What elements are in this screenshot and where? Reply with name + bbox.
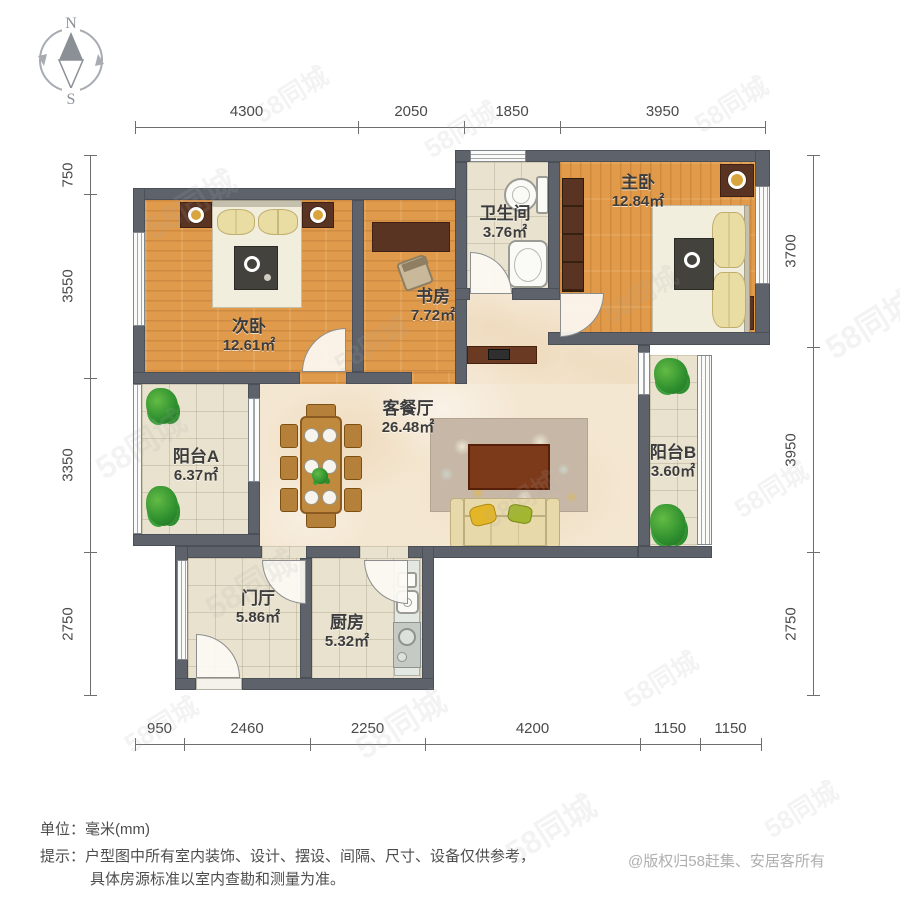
watermark-text: 58同城 bbox=[345, 677, 454, 769]
note-tip-line2: 具体房源标准以室内查勘和测量为准。 bbox=[90, 868, 345, 889]
room-name: 客餐厅 bbox=[348, 398, 468, 419]
watermark-text: 58同城 bbox=[815, 277, 900, 369]
room-label-master: 主卧 12.84㎡ bbox=[573, 172, 703, 212]
room-area: 7.72㎡ bbox=[373, 307, 493, 326]
room-label-balconyB: 阳台B 3.60㎡ bbox=[613, 442, 733, 482]
room-label-bath: 卫生间 3.76㎡ bbox=[445, 203, 565, 243]
room-area: 5.32㎡ bbox=[287, 633, 407, 652]
room-name: 次卧 bbox=[189, 316, 309, 337]
room-name: 阳台A bbox=[136, 446, 256, 467]
room-name: 书房 bbox=[373, 286, 493, 307]
room-area: 3.60㎡ bbox=[613, 463, 733, 482]
room-name: 卫生间 bbox=[445, 203, 565, 224]
room-area: 12.84㎡ bbox=[573, 193, 703, 212]
room-label-kitchen: 厨房 5.32㎡ bbox=[287, 612, 407, 652]
room-name: 阳台B bbox=[613, 442, 733, 463]
watermark-layer: 58同城58同城58同城58同城58同城58同城58同城58同城58同城58同城… bbox=[0, 0, 900, 900]
watermark-text: 58同城 bbox=[416, 91, 504, 165]
note-unit: 单位：毫米(mm) bbox=[40, 818, 150, 839]
watermark-text: 58同城 bbox=[596, 256, 684, 330]
room-label-study: 书房 7.72㎡ bbox=[373, 286, 493, 326]
room-label-bedroom2: 次卧 12.61㎡ bbox=[189, 316, 309, 356]
room-label-living: 客餐厅 26.48㎡ bbox=[348, 398, 468, 438]
room-name: 门厅 bbox=[198, 588, 318, 609]
room-area: 3.76㎡ bbox=[445, 224, 565, 243]
room-label-balconyA: 阳台A 6.37㎡ bbox=[136, 446, 256, 486]
watermark-text: 58同城 bbox=[476, 461, 564, 535]
room-name: 厨房 bbox=[287, 612, 407, 633]
watermark-text: 58同城 bbox=[116, 686, 204, 760]
room-area: 26.48㎡ bbox=[348, 419, 468, 438]
room-area: 12.61㎡ bbox=[189, 337, 309, 356]
watermark-text: 58同城 bbox=[246, 56, 334, 130]
floorplan-canvas: N S 次卧 12.61㎡ 书房 7.72㎡ 卫生间 3.76㎡ 主卧 12.8… bbox=[0, 0, 900, 900]
watermark-text: 58同城 bbox=[686, 66, 774, 140]
watermark-text: 58同城 bbox=[135, 157, 244, 249]
room-name: 主卧 bbox=[573, 172, 703, 193]
watermark-text: 58同城 bbox=[616, 641, 704, 715]
copyright-text: @版权归58赶集、安居客所有 bbox=[628, 850, 825, 871]
watermark-text: 58同城 bbox=[756, 771, 844, 845]
room-area: 6.37㎡ bbox=[136, 467, 256, 486]
watermark-text: 58同城 bbox=[726, 451, 814, 525]
note-tip-line1: 提示：户型图中所有室内装饰、设计、摆设、间隔、尺寸、设备仅供参考， bbox=[40, 845, 535, 866]
